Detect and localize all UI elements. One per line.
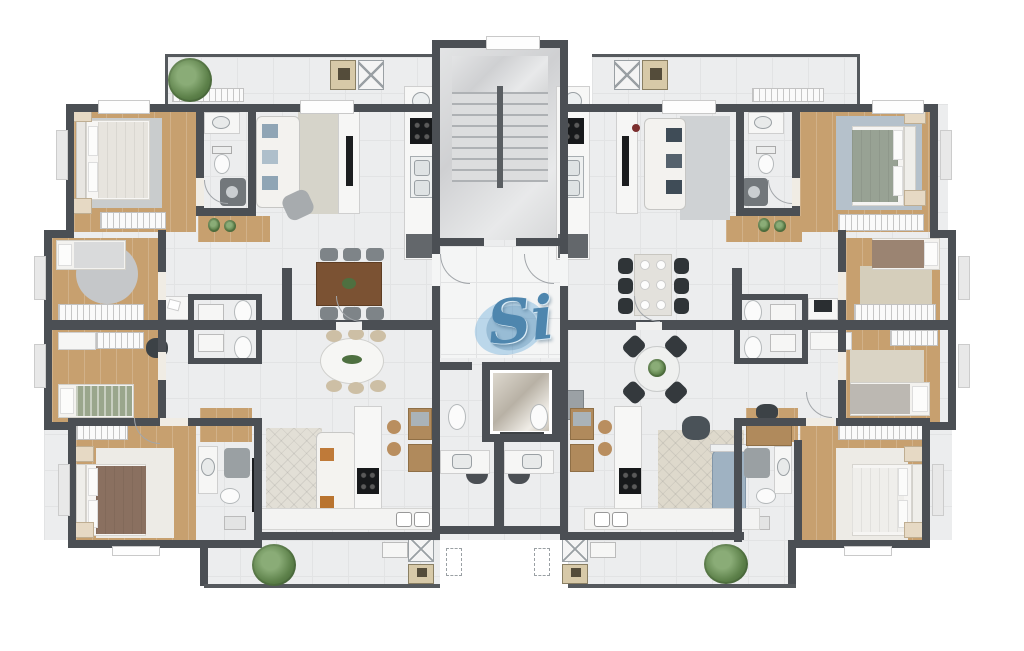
toilet — [214, 154, 230, 174]
wall — [254, 418, 262, 542]
railing — [857, 54, 860, 104]
brand-logo: Si — [462, 280, 579, 365]
sofa-cushion — [262, 176, 278, 190]
wall — [68, 540, 262, 548]
bed-blanket — [74, 242, 124, 268]
wall — [788, 540, 796, 586]
table-centerpiece-plant — [648, 359, 666, 377]
door-gap — [336, 322, 362, 330]
dining-chair — [348, 382, 364, 394]
pouf-bottom-right — [682, 416, 710, 440]
plate — [656, 280, 666, 290]
plate — [640, 280, 650, 290]
wall — [196, 208, 256, 216]
sofa-arm — [710, 444, 748, 452]
wall — [734, 418, 742, 542]
dining-chair — [366, 248, 384, 261]
plant-terrace-icon — [168, 58, 212, 102]
wall — [736, 104, 744, 216]
dining-chair — [320, 248, 338, 261]
door-gap — [792, 178, 800, 206]
door-gap — [806, 418, 834, 426]
plant-balcony-right-icon — [704, 544, 748, 584]
bath-sink — [201, 458, 215, 476]
bar-stool — [598, 442, 612, 456]
shower-tray — [224, 448, 250, 478]
wall — [482, 362, 490, 442]
wall — [256, 294, 262, 364]
window-sill — [34, 256, 46, 300]
wall — [732, 268, 742, 322]
dining-chair — [320, 307, 338, 320]
cooktop-bottom-right — [619, 468, 641, 494]
window — [98, 100, 150, 114]
wall — [188, 358, 262, 364]
dining-chair — [326, 330, 342, 342]
wardrobe-bedroom-2 — [58, 304, 144, 321]
wall — [948, 230, 956, 430]
table-centerpiece — [342, 355, 362, 364]
wall — [432, 238, 484, 246]
table-centerpiece — [342, 278, 356, 289]
bed-pillow — [898, 468, 908, 496]
wc-sink — [198, 334, 224, 352]
wall — [432, 526, 562, 534]
sofa-cushion — [666, 128, 682, 142]
future-fixture — [446, 548, 462, 576]
desktop-computer — [814, 300, 832, 312]
wall — [736, 418, 810, 426]
wall — [44, 320, 436, 330]
toilet — [758, 154, 774, 174]
cabinet-inset — [573, 412, 591, 426]
dining-chair — [326, 380, 342, 392]
wall — [794, 440, 802, 540]
plant-foyer-icon — [224, 220, 236, 232]
washer-door — [417, 568, 427, 577]
bed-blanket-brown — [96, 466, 146, 534]
wc-sink — [612, 512, 628, 527]
dining-chair — [366, 307, 384, 320]
railing — [204, 584, 440, 588]
wall — [188, 294, 194, 364]
door-gap — [636, 322, 662, 330]
shower-head — [748, 186, 760, 198]
wall — [260, 532, 440, 540]
window-sill — [58, 464, 70, 516]
tv-top-right — [622, 136, 629, 186]
sink-basin — [414, 160, 430, 176]
window — [662, 100, 716, 114]
bed-blanket — [852, 468, 904, 532]
wall — [736, 208, 800, 216]
toilet — [756, 488, 776, 504]
wall — [802, 294, 808, 364]
window — [844, 546, 892, 556]
window — [300, 100, 354, 114]
bed-headboard — [76, 120, 86, 200]
wc-sink — [414, 512, 430, 527]
wall — [734, 358, 808, 364]
bed-blanket — [98, 122, 148, 198]
sofa-cushion — [666, 180, 682, 194]
bed-blanket — [850, 384, 910, 414]
wardrobe-mid-right-1 — [854, 304, 936, 321]
cooktop-bottom-left — [357, 468, 379, 494]
wall — [482, 434, 560, 442]
plant-balcony-left-icon — [252, 544, 296, 586]
wall — [494, 442, 504, 534]
railing — [592, 54, 860, 57]
window-sill — [34, 344, 46, 388]
bar-stool — [387, 420, 401, 434]
toilet — [530, 404, 548, 430]
wall — [282, 268, 292, 322]
plate — [640, 260, 650, 270]
door-gap — [160, 418, 188, 426]
wall — [516, 238, 568, 246]
dining-chair — [674, 278, 689, 294]
nightstand — [904, 190, 926, 206]
toilet-tank — [212, 146, 232, 154]
dining-chair — [370, 380, 386, 392]
window-sill — [940, 130, 952, 180]
hall-cabinet — [408, 444, 432, 472]
railing — [568, 584, 796, 588]
wc-sink — [522, 454, 542, 469]
wall — [922, 422, 930, 548]
bed-pillow — [88, 126, 98, 156]
dining-chair — [674, 258, 689, 274]
decor-candles — [632, 124, 640, 132]
dining-chair — [618, 278, 633, 294]
future-fixture — [534, 548, 550, 576]
sofa-cushion — [262, 124, 278, 138]
toilet-tank — [756, 146, 776, 154]
wall — [248, 104, 256, 216]
wc-sink — [594, 512, 610, 527]
door-gap — [838, 352, 846, 380]
plant-foyer-icon — [774, 220, 786, 232]
window-sill — [958, 256, 970, 300]
wall — [200, 540, 208, 586]
wall — [560, 40, 568, 254]
door-gap — [838, 272, 846, 300]
wall — [560, 440, 568, 534]
towel-rack — [224, 516, 246, 530]
wall — [552, 362, 560, 442]
wc-sink — [452, 454, 472, 469]
washer-door — [650, 68, 662, 80]
wall — [734, 294, 808, 300]
wall — [836, 418, 930, 426]
wardrobe-bedroom-top-right — [838, 214, 924, 231]
wc-sink — [770, 334, 796, 352]
service-closet — [358, 60, 384, 90]
wall — [432, 440, 440, 534]
plant-foyer-icon — [208, 218, 220, 232]
wall — [188, 418, 262, 426]
toilet — [234, 336, 252, 360]
wall — [930, 104, 938, 238]
bath-sink — [212, 116, 230, 129]
wardrobe-master-right — [838, 424, 926, 440]
plate — [656, 260, 666, 270]
tv-top-left — [346, 136, 353, 186]
sofa-cushion — [666, 154, 682, 168]
hall-cabinet — [570, 444, 594, 472]
wc-sink — [396, 512, 412, 527]
wall — [432, 362, 472, 370]
wall — [524, 362, 560, 370]
window-sill — [958, 344, 970, 388]
kitchen-island-bottom-right — [614, 406, 642, 516]
bed-pillow — [88, 468, 98, 496]
laundry-sink — [590, 542, 616, 558]
wall — [560, 532, 744, 540]
stair-center-rail — [497, 86, 503, 188]
wardrobe-mid-right-2 — [890, 330, 938, 346]
dining-chair — [674, 298, 689, 314]
door-gap — [196, 178, 204, 206]
washer-door — [338, 68, 350, 80]
bed-pillow — [58, 244, 72, 266]
sofa-pillow-orange — [320, 448, 334, 461]
window — [112, 546, 160, 556]
wall — [568, 320, 956, 330]
door-gap — [158, 352, 166, 380]
bar-stool — [387, 442, 401, 456]
bed-pillow — [88, 162, 98, 192]
window — [486, 36, 540, 50]
desk-bedroom-3 — [58, 332, 96, 350]
window — [872, 100, 924, 114]
wall — [188, 294, 262, 300]
door-gap — [432, 254, 440, 286]
bed-pillow — [893, 166, 903, 196]
wall — [432, 40, 440, 254]
window-sill — [932, 464, 944, 516]
dining-chair — [618, 258, 633, 274]
service-closet — [614, 60, 640, 90]
dining-chair — [343, 248, 361, 261]
railing — [165, 54, 432, 57]
wardrobe-bedroom-3 — [96, 332, 144, 349]
bed-blanket — [852, 130, 898, 202]
bed-blanket — [872, 240, 924, 268]
toilet — [220, 488, 240, 504]
floor-plan-canvas: Si — [0, 0, 1024, 651]
toilet — [744, 336, 762, 360]
plant-foyer-icon — [758, 218, 770, 232]
sofa-cushion — [262, 150, 278, 164]
bar-stool — [598, 420, 612, 434]
dining-chair — [370, 330, 386, 342]
laundry-sink — [382, 542, 408, 558]
bed-pillow — [912, 386, 928, 412]
bath-sink — [777, 458, 790, 476]
bath-sink — [754, 116, 772, 129]
wardrobe-master-left — [76, 424, 128, 440]
washer-door — [571, 568, 581, 577]
shower-tray — [744, 448, 770, 478]
door-gap — [158, 272, 166, 300]
rug-living-top-right — [680, 116, 730, 220]
wardrobe-bedroom-1 — [100, 212, 166, 229]
cooktop-left — [410, 118, 434, 144]
kitchen-island-bottom-left — [354, 406, 382, 516]
bed-pillow — [893, 130, 903, 160]
sink-basin — [414, 180, 430, 196]
bed-blanket-green — [76, 386, 132, 416]
bed-pillow — [60, 388, 74, 414]
planter-box — [752, 88, 824, 102]
dining-chair — [618, 298, 633, 314]
toilet — [448, 404, 466, 430]
bed-pillow — [924, 242, 938, 266]
window-sill — [56, 130, 68, 180]
rug-bedroom-mid-right-1 — [860, 266, 932, 304]
cabinet-inset — [411, 412, 429, 426]
